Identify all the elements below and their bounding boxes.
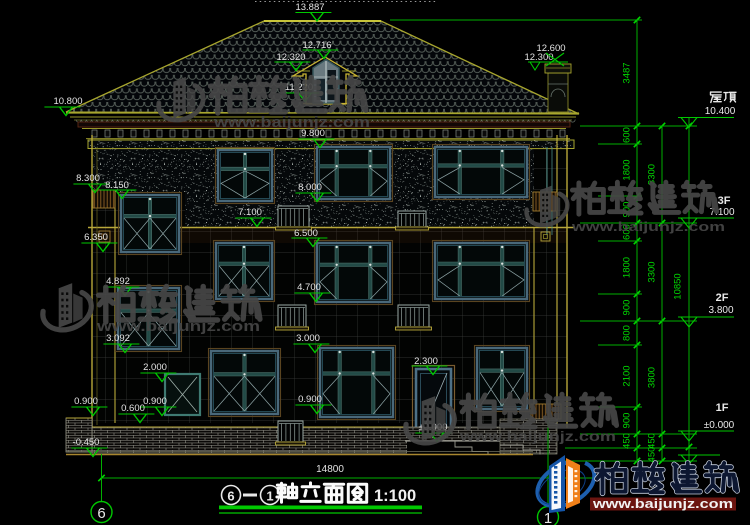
- svg-text:0.600: 0.600: [121, 403, 145, 414]
- svg-text:6.500: 6.500: [294, 228, 318, 239]
- svg-text:3300: 3300: [647, 261, 658, 282]
- svg-text:3800: 3800: [647, 367, 658, 388]
- svg-text:10850: 10850: [673, 273, 684, 299]
- svg-text:10.800: 10.800: [53, 96, 82, 107]
- svg-text:0.900: 0.900: [74, 396, 98, 407]
- svg-text:10.400: 10.400: [705, 106, 736, 117]
- svg-text:1: 1: [266, 489, 273, 504]
- svg-text:1F: 1F: [716, 402, 729, 414]
- svg-text:12.320: 12.320: [276, 52, 305, 63]
- svg-text:2F: 2F: [716, 292, 729, 304]
- svg-text:450: 450: [647, 433, 658, 449]
- svg-text:900: 900: [622, 413, 633, 429]
- svg-text:3.000: 3.000: [296, 333, 320, 344]
- svg-text:www.baijunjz.com: www.baijunjz.com: [213, 115, 370, 131]
- svg-text:1800: 1800: [622, 159, 633, 180]
- svg-text:900: 900: [622, 300, 633, 316]
- svg-text:4.892: 4.892: [106, 276, 130, 287]
- svg-text:12.300: 12.300: [524, 52, 553, 63]
- svg-text:1:100: 1:100: [374, 487, 416, 505]
- svg-text:600: 600: [622, 127, 633, 143]
- svg-text:12.716: 12.716: [302, 40, 331, 51]
- svg-text:3F: 3F: [718, 195, 731, 207]
- svg-text:8.300: 8.300: [76, 173, 100, 184]
- svg-text:7.100: 7.100: [238, 207, 262, 218]
- svg-text:8.150: 8.150: [105, 180, 129, 191]
- svg-text:www.baijunjz.com: www.baijunjz.com: [571, 219, 725, 234]
- svg-text:0.900: 0.900: [298, 394, 322, 405]
- svg-text:www.baijunjz.com: www.baijunjz.com: [459, 429, 616, 444]
- svg-text:±0.000: ±0.000: [704, 420, 735, 431]
- svg-text:1800: 1800: [622, 257, 633, 278]
- svg-text:-0.450: -0.450: [73, 437, 100, 448]
- svg-text:2.000: 2.000: [143, 362, 167, 373]
- svg-text:3487: 3487: [622, 62, 633, 83]
- svg-text:www.baijunjz.com: www.baijunjz.com: [592, 497, 733, 511]
- svg-text:3.800: 3.800: [708, 305, 733, 316]
- svg-text:6.350: 6.350: [84, 232, 108, 243]
- svg-text:0.900: 0.900: [143, 396, 167, 407]
- svg-text:6: 6: [97, 505, 105, 522]
- svg-text:4.700: 4.700: [297, 282, 321, 293]
- svg-text:13.887: 13.887: [295, 2, 324, 13]
- svg-text:2.300: 2.300: [414, 356, 438, 367]
- svg-text:14800: 14800: [316, 464, 344, 475]
- svg-text:800: 800: [622, 325, 633, 341]
- svg-text:www.baijunjz.com: www.baijunjz.com: [96, 319, 260, 335]
- svg-text:8.000: 8.000: [298, 182, 322, 193]
- svg-text:450: 450: [622, 433, 633, 449]
- svg-text:6: 6: [227, 489, 234, 504]
- svg-text:2100: 2100: [622, 365, 633, 386]
- svg-text:450: 450: [647, 447, 658, 463]
